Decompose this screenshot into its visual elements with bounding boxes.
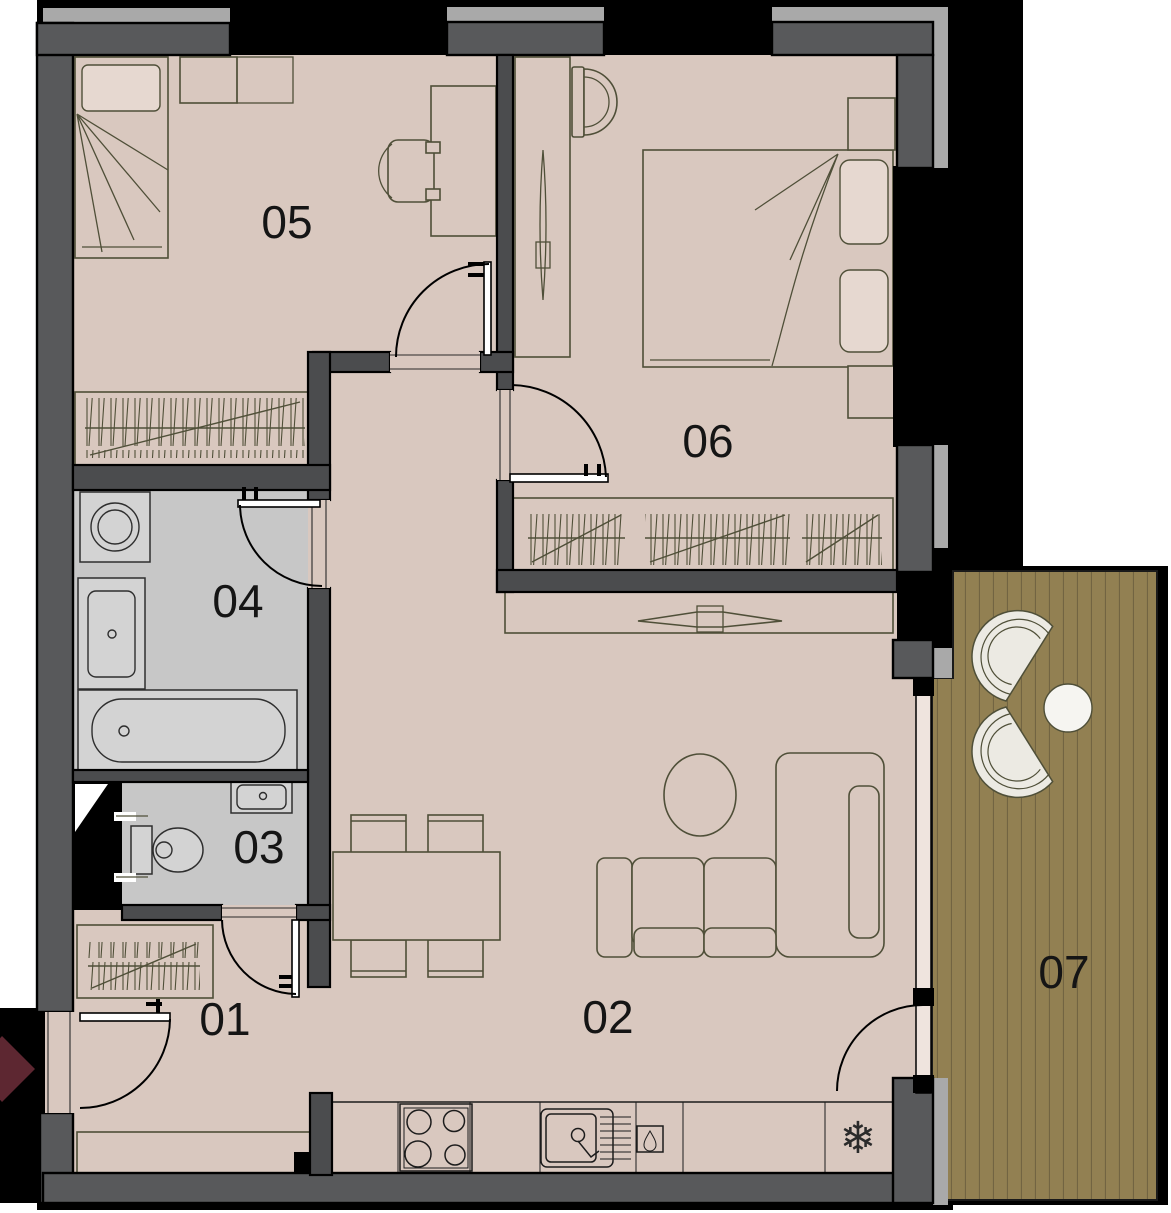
wc-sink-icon — [231, 781, 292, 813]
floor-plan-drawing: ❄ — [0, 0, 1171, 1213]
room-label-02: 02 — [582, 991, 633, 1043]
nightstand-bottom — [848, 366, 895, 418]
kitchen-counter: ❄ — [332, 1102, 893, 1173]
wardrobe-bedroom-05 — [75, 392, 313, 465]
room-label-07: 07 — [1038, 946, 1089, 998]
hallway-bench — [77, 1132, 312, 1173]
washing-machine-icon — [80, 492, 150, 562]
balcony-table — [1044, 684, 1092, 732]
coffee-table — [664, 754, 736, 836]
room-label-03: 03 — [233, 821, 284, 873]
bathtub-icon — [78, 690, 297, 771]
balcony-window-wall — [913, 678, 934, 1093]
nightstand-top — [848, 98, 895, 150]
desk-chair — [379, 140, 440, 202]
single-bed — [75, 57, 168, 258]
floor-plan: ❄ — [0, 0, 1171, 1213]
tall-wardrobe — [515, 57, 570, 357]
bathroom-sink-icon — [78, 578, 145, 689]
dining-table — [333, 852, 500, 940]
room-label-06: 06 — [682, 415, 733, 467]
wardrobe-hallway — [77, 925, 213, 998]
tv-sideboard — [505, 592, 893, 633]
balcony-deck — [932, 571, 1157, 1200]
desk — [431, 86, 496, 236]
double-bed — [643, 150, 893, 367]
wardrobe-bedroom-06 — [513, 498, 893, 570]
toilet-icon — [131, 826, 203, 874]
room-label-05: 05 — [261, 196, 312, 248]
fridge-snowflake-icon: ❄ — [840, 1113, 877, 1164]
room-label-04: 04 — [212, 575, 263, 627]
room-label-01: 01 — [199, 993, 250, 1045]
